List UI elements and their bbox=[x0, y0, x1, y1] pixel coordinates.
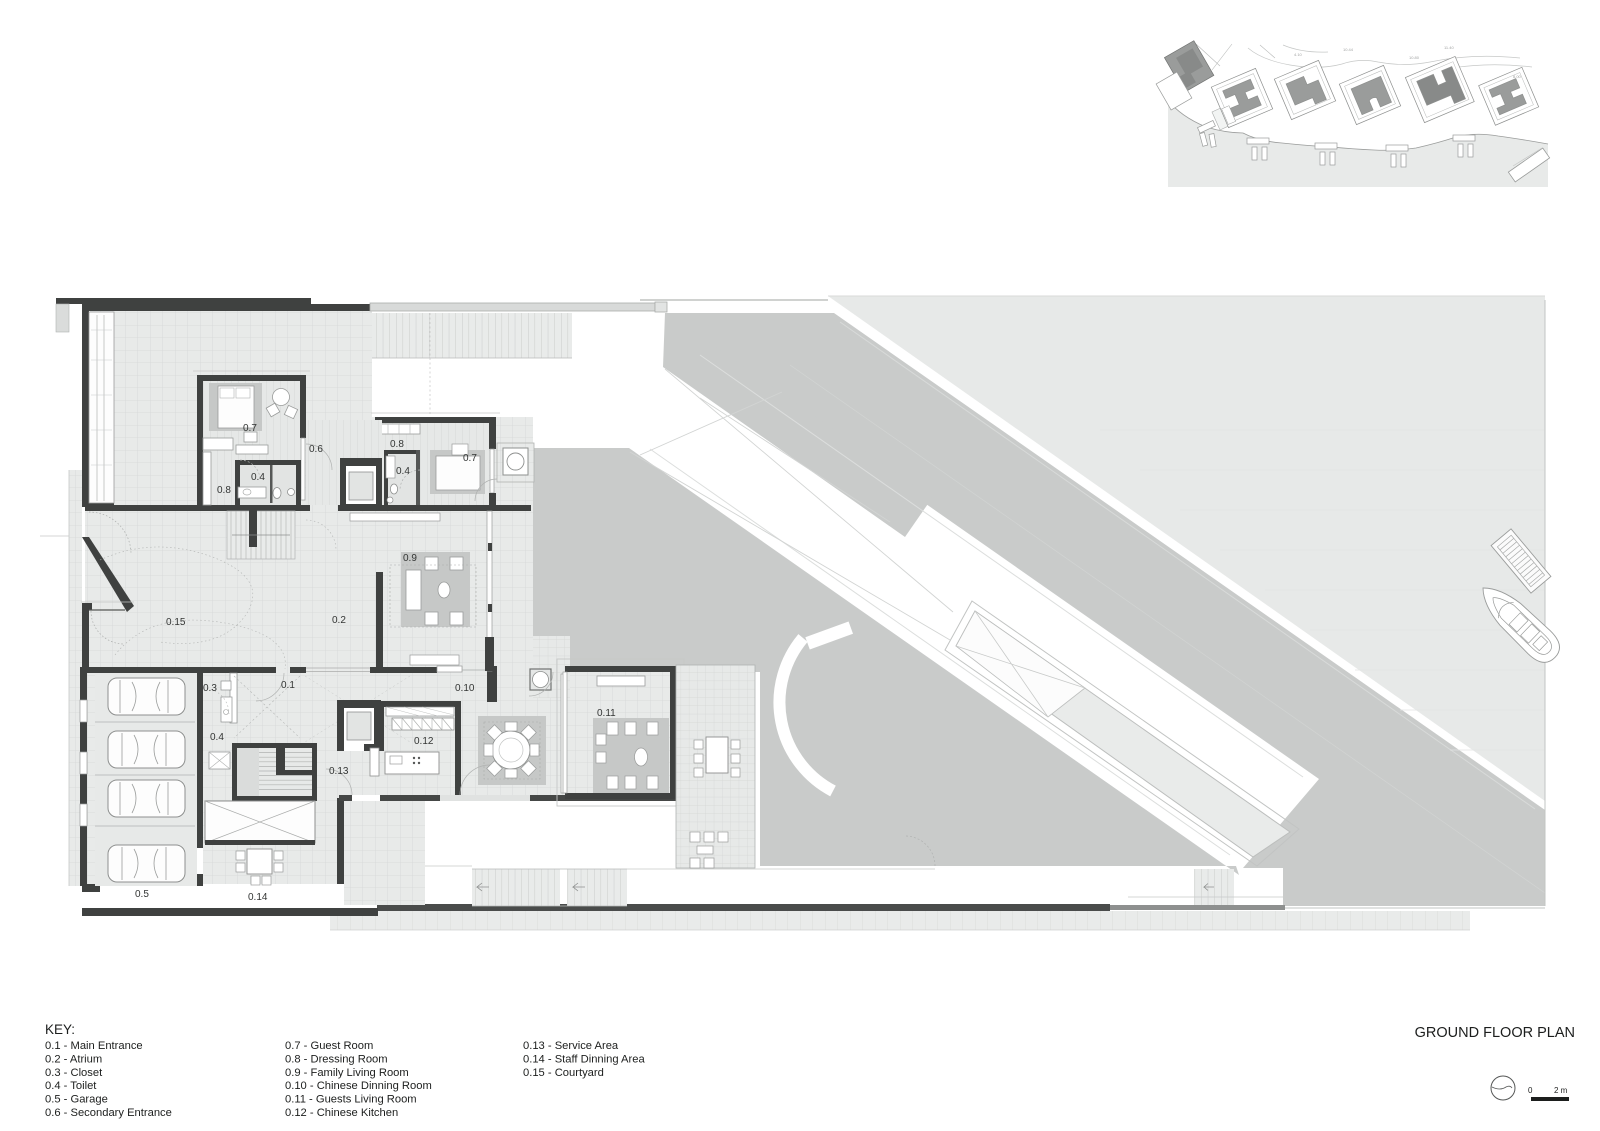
svg-text:0.3 - Closet: 0.3 - Closet bbox=[45, 1067, 103, 1079]
svg-text:10.80: 10.80 bbox=[1409, 55, 1420, 60]
svg-text:0.2: 0.2 bbox=[332, 615, 346, 626]
svg-text:0.15 - Courtyard: 0.15 - Courtyard bbox=[523, 1067, 604, 1079]
svg-text:0.2 - Atrium: 0.2 - Atrium bbox=[45, 1053, 102, 1065]
svg-text:0.6: 0.6 bbox=[309, 444, 323, 455]
svg-text:2 m: 2 m bbox=[1554, 1086, 1568, 1095]
svg-text:4.10: 4.10 bbox=[1294, 52, 1303, 57]
svg-text:KEY:: KEY: bbox=[45, 1022, 75, 1037]
svg-text:10.44: 10.44 bbox=[1343, 47, 1354, 52]
svg-text:0.1: 0.1 bbox=[281, 680, 295, 691]
svg-text:0.11: 0.11 bbox=[597, 708, 616, 719]
svg-text:0.9 - Family Living Room: 0.9 - Family Living Room bbox=[285, 1067, 409, 1079]
svg-text:0.14 - Staff Dinning Area: 0.14 - Staff Dinning Area bbox=[523, 1053, 645, 1065]
svg-text:0.12 - Chinese Kitchen: 0.12 - Chinese Kitchen bbox=[285, 1107, 398, 1119]
svg-text:0.8: 0.8 bbox=[390, 439, 404, 450]
svg-text:0.7: 0.7 bbox=[463, 453, 477, 464]
svg-text:0.1 - Main Entrance: 0.1 - Main Entrance bbox=[45, 1040, 143, 1052]
svg-text:0.10 - Chinese Dinning Room: 0.10 - Chinese Dinning Room bbox=[285, 1080, 432, 1092]
svg-text:0.5: 0.5 bbox=[135, 889, 149, 900]
svg-text:0.13 - Service Area: 0.13 - Service Area bbox=[523, 1040, 619, 1052]
svg-text:0.12: 0.12 bbox=[414, 736, 434, 747]
svg-text:0.4: 0.4 bbox=[251, 472, 265, 483]
svg-text:0.8: 0.8 bbox=[217, 485, 231, 496]
svg-text:11.40: 11.40 bbox=[1444, 45, 1454, 50]
svg-text:0.7 - Guest Room: 0.7 - Guest Room bbox=[285, 1040, 373, 1052]
svg-text:0.15: 0.15 bbox=[166, 617, 186, 628]
svg-text:0.4: 0.4 bbox=[210, 732, 224, 743]
svg-text:0.13: 0.13 bbox=[329, 766, 349, 777]
svg-text:0.5 - Garage: 0.5 - Garage bbox=[45, 1094, 108, 1106]
svg-text:0.4 - Toilet: 0.4 - Toilet bbox=[45, 1080, 97, 1092]
svg-text:0.9: 0.9 bbox=[403, 553, 417, 564]
svg-text:0.3: 0.3 bbox=[203, 683, 217, 694]
svg-text:0.14: 0.14 bbox=[248, 892, 268, 903]
svg-text:0.4: 0.4 bbox=[396, 466, 410, 477]
svg-text:8.00: 8.00 bbox=[1513, 74, 1522, 79]
svg-text:0: 0 bbox=[1528, 1086, 1533, 1095]
svg-text:GROUND FLOOR PLAN: GROUND FLOOR PLAN bbox=[1415, 1025, 1575, 1041]
svg-text:0.6 - Secondary Entrance: 0.6 - Secondary Entrance bbox=[45, 1107, 172, 1119]
svg-text:0.10: 0.10 bbox=[455, 683, 475, 694]
svg-text:0.8 - Dressing Room: 0.8 - Dressing Room bbox=[285, 1053, 388, 1065]
svg-text:0.7: 0.7 bbox=[243, 423, 257, 434]
svg-text:0.11 - Guests Living Room: 0.11 - Guests Living Room bbox=[285, 1094, 417, 1106]
